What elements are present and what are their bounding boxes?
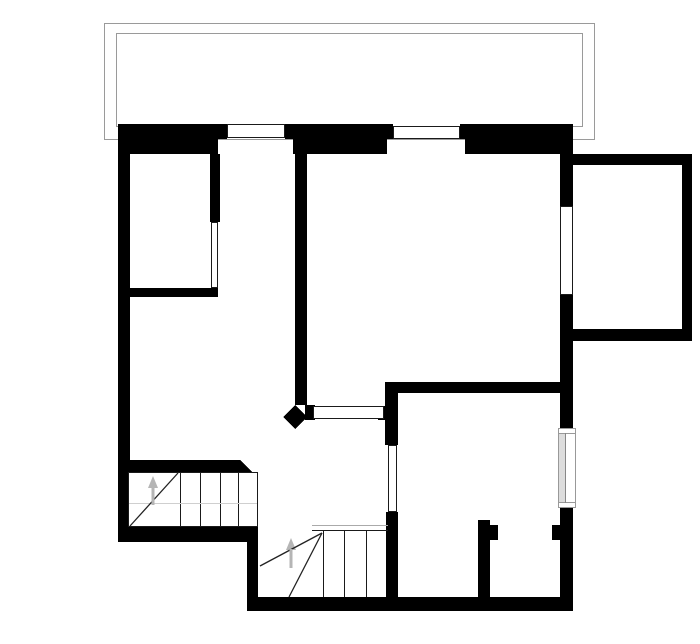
stair-upper-wall-top — [128, 460, 240, 472]
annex-wall-bottom — [560, 329, 692, 341]
window-top-2 — [394, 127, 460, 139]
window-right-upper — [561, 207, 573, 295]
exterior-wall-right-2 — [560, 295, 573, 428]
floor-plan-canvas — [0, 0, 700, 644]
window-top-1 — [228, 125, 285, 138]
exterior-wall-right-1 — [560, 154, 573, 206]
kitchen-doorway-wall-lower — [386, 512, 398, 597]
exterior-wall-top-outer-1 — [118, 124, 227, 139]
exterior-wall-top-inner-2 — [293, 139, 387, 154]
exterior-wall-right-3 — [560, 508, 573, 611]
annex-wall-top — [573, 154, 692, 165]
closet-wall-left — [478, 520, 490, 597]
annex-wall-right — [682, 154, 692, 341]
exterior-wall-top-inner-3 — [465, 139, 573, 154]
pass-through-counter — [314, 407, 384, 419]
stair-lower-winder-diagonal-2 — [289, 533, 322, 597]
exterior-wall-bottom — [247, 597, 573, 611]
exterior-wall-top-outer-3 — [460, 124, 573, 139]
stair-upper-wall-top-slant — [240, 460, 252, 472]
bedroom-wall-top — [385, 382, 573, 393]
column-diamond — [283, 405, 307, 429]
closet-door-jamb-left — [490, 525, 498, 540]
room1-wall-bottom — [128, 288, 218, 297]
interior-wall-middle — [295, 154, 307, 405]
exterior-wall-top-inner-1 — [118, 139, 218, 154]
door-opening-kitchen — [389, 446, 397, 512]
room1-wall-right — [210, 154, 220, 222]
window-right-lower-shade — [559, 433, 565, 503]
glass-door-room1 — [212, 223, 218, 288]
closet-door-jamb-right — [552, 525, 560, 540]
stair-upper-wall-bottom — [118, 527, 258, 542]
balcony-outline-inner — [117, 34, 583, 127]
floor-plan-drawing — [0, 0, 700, 644]
exterior-wall-top-outer-2 — [285, 124, 393, 139]
